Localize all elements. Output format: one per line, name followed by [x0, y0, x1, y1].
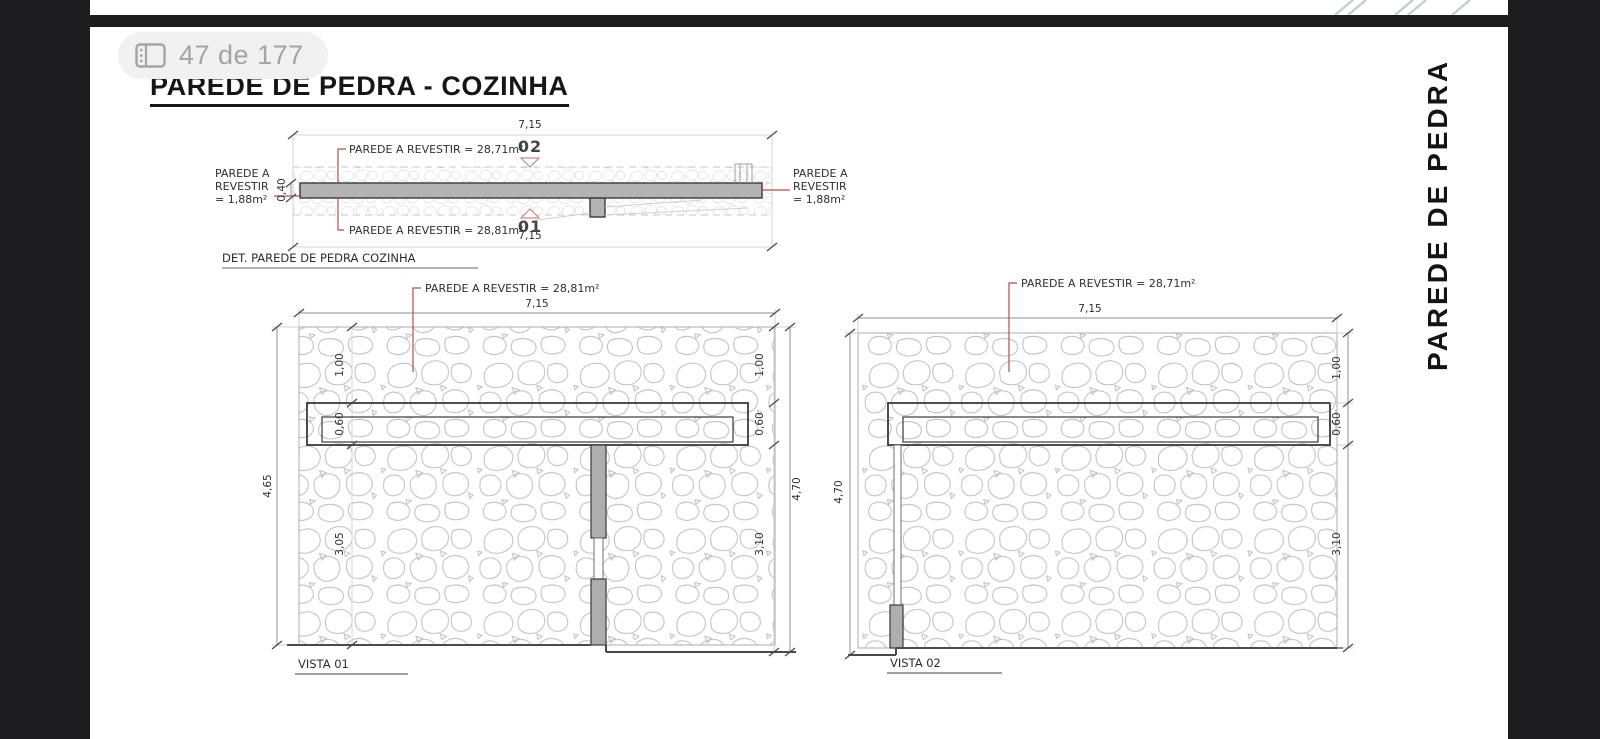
technical-drawing: 7,15 7,15 02 01 PAREDE A REVESTIR = 28,7…: [90, 27, 1508, 739]
page-indicator-text: 47 de 177: [179, 40, 304, 71]
diagonal-hatch-lines: [1335, 0, 1470, 15]
vista01-column-lower: [591, 579, 606, 645]
vista02-dim-niche-right: 0,60: [1331, 412, 1343, 435]
previous-page-edge: [90, 0, 1508, 15]
plan-caption: DET. PAREDE DE PEDRA COZINHA: [222, 251, 416, 265]
vista02-stone-wall: [858, 333, 1337, 648]
vista02-dim-height-left: 4,70: [833, 480, 845, 503]
vista01-dim-niche-right: 0,60: [754, 412, 766, 435]
vista02-column-shaft: [894, 445, 901, 605]
vista01-dim-upper-right: 1,00: [754, 353, 766, 376]
elevation-vista-02: 7,15 4,70 1,00 0,60 3,10 PAREDE A REVEST…: [833, 277, 1353, 673]
plan-label-left-line1: PAREDE A: [215, 167, 270, 180]
plan-label-right-line2: REVESTIR: [793, 180, 847, 193]
plan-detail-view: 7,15 7,15 02 01 PAREDE A REVESTIR = 28,7…: [215, 119, 848, 268]
vista01-dim-niche-left: 0,60: [334, 412, 346, 435]
plan-label-right: PAREDE A REVESTIR = 1,88m²: [762, 167, 848, 206]
vista01-dim-height-right: 4,70: [791, 477, 803, 500]
document-page: 47 de 177 PAREDE DE PEDRA - COZINHA PARE…: [90, 27, 1508, 739]
page-indicator-pill[interactable]: 47 de 177: [118, 32, 328, 79]
pages-panel-icon: [135, 43, 166, 68]
vista01-dim-lower-left: 3,05: [334, 532, 346, 555]
plan-dim-thickness: 0,40: [276, 178, 288, 201]
plan-wall-stub: [590, 198, 605, 217]
sheet-side-label: PAREDE DE PEDRA: [1422, 65, 1454, 371]
vista01-column-upper: [591, 445, 606, 538]
plan-label-left-line3: = 1,88m²: [215, 193, 267, 206]
plan-label-left-line2: REVESTIR: [215, 180, 269, 193]
vista01-dim-width: 7,15: [525, 298, 548, 310]
vista02-dim-upper-right: 1,00: [1331, 356, 1343, 379]
vista02-column-base: [890, 605, 903, 648]
vista01-ground-line: [287, 645, 796, 652]
vista02-dim-width: 7,15: [1078, 303, 1101, 315]
section-triangle-down: [521, 158, 539, 167]
plan-label-bottom: PAREDE A REVESTIR = 28,81m²: [349, 224, 523, 237]
vista02-label: PAREDE A REVESTIR = 28,71m²: [1021, 277, 1195, 290]
vista01-column-gap: [594, 538, 603, 579]
vista01-caption: VISTA 01: [298, 657, 349, 671]
vista01-label: PAREDE A REVESTIR = 28,81m²: [425, 282, 599, 295]
vista02-ground-line: [848, 648, 1343, 655]
vista01-stone-wall: [299, 327, 775, 645]
vista01-dim-height-left: 4,65: [262, 474, 274, 497]
plan-label-top: PAREDE A REVESTIR = 28,71m²: [349, 143, 523, 156]
plan-label-right-line1: PAREDE A: [793, 167, 848, 180]
vista01-dim-upper-left: 1,00: [334, 353, 346, 376]
viewer-root: { "viewer": { "page_indicator": "47 de 1…: [0, 0, 1600, 739]
plan-dim-width-top: 7,15: [518, 119, 541, 131]
plan-label-right-line3: = 1,88m²: [793, 193, 845, 206]
plan-wall-section: [300, 183, 762, 198]
elevation-vista-01: 7,15 4,65 4,70 1,00 0,60 3,05 1,00 0,60: [262, 282, 803, 674]
vista02-caption: VISTA 02: [890, 656, 941, 670]
previous-page-drawing-remnant: [90, 0, 1508, 15]
vista01-dim-lower-right: 3,10: [754, 532, 766, 555]
vista02-dim-lower-right: 3,10: [1331, 532, 1343, 555]
